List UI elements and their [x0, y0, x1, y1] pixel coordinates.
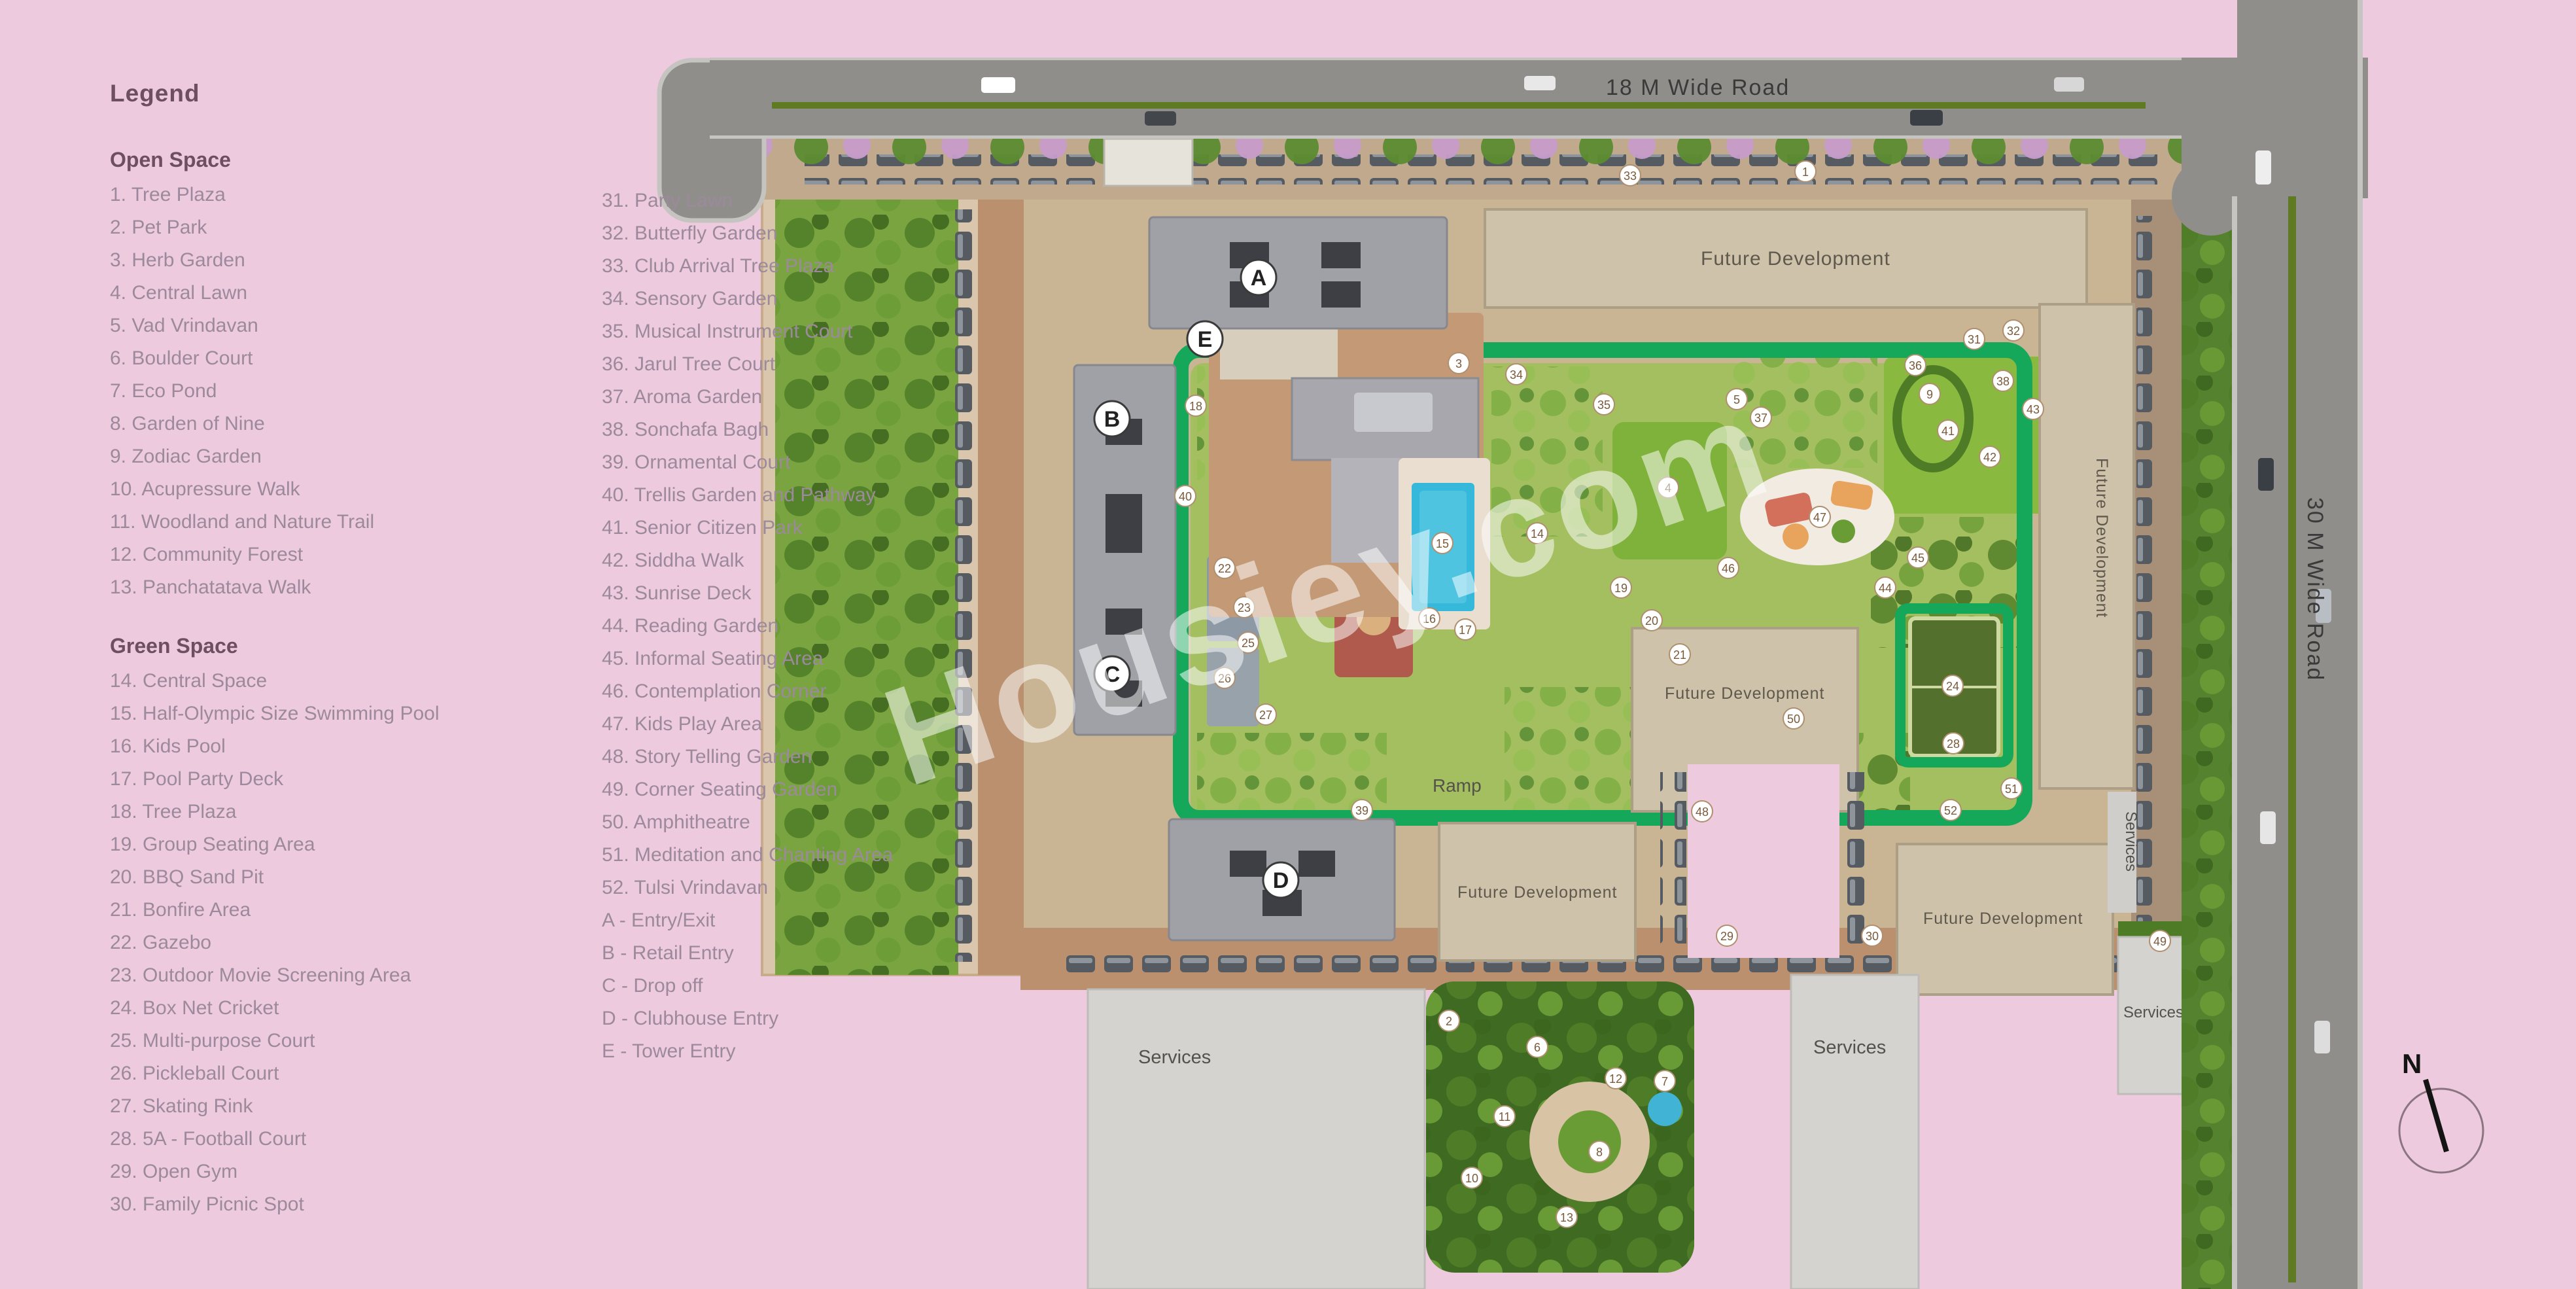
svg-text:41: 41 — [1941, 425, 1955, 438]
svg-text:27: 27 — [1259, 709, 1272, 722]
services-left-label: Services — [1138, 1047, 1211, 1068]
legend-item: 12. Community Forest — [110, 539, 1091, 571]
svg-text:34: 34 — [1510, 368, 1523, 381]
legend-item: 40. Trellis Garden and Pathway — [602, 479, 893, 512]
legend-item: 46. Contemplation Corner — [602, 675, 893, 708]
legend-item: 51. Meditation and Chanting Area — [602, 839, 893, 872]
future-dev-bottom-left-label: Future Development — [1457, 883, 1618, 902]
svg-text:31: 31 — [1968, 333, 1981, 346]
legend-item: 36. Jarul Tree Court — [602, 348, 893, 381]
legend-item: 43. Sunrise Deck — [602, 577, 893, 610]
median-right — [2288, 196, 2296, 1282]
entry-key-item: A - Entry/Exit — [602, 904, 893, 937]
svg-text:22: 22 — [1218, 562, 1231, 575]
legend-item: 45. Informal Seating Area — [602, 643, 893, 675]
svg-text:8: 8 — [1596, 1146, 1603, 1159]
svg-text:45: 45 — [1911, 552, 1924, 565]
legend-item: 10. Acupressure Walk — [110, 473, 1091, 506]
future-dev-mid-label: Future Development — [1665, 684, 1825, 703]
legend-item: 26. Pickleball Court — [110, 1057, 1091, 1090]
future-dev-top-label: Future Development — [1701, 248, 1890, 270]
legend-item: 13. Panchatatava Walk — [110, 571, 1091, 604]
entry-key-item: C - Drop off — [602, 970, 893, 1002]
future-dev-right — [2040, 304, 2134, 788]
svg-text:3: 3 — [1455, 357, 1462, 370]
svg-text:52: 52 — [1944, 804, 1957, 817]
compass: N — [2399, 1048, 2483, 1173]
svg-text:25: 25 — [1242, 637, 1255, 650]
svg-text:7: 7 — [1662, 1075, 1668, 1088]
legend-item: 52. Tulsi Vrindavan — [602, 872, 893, 904]
svg-text:16: 16 — [1423, 612, 1436, 626]
svg-text:9: 9 — [1926, 388, 1933, 401]
svg-text:33: 33 — [1624, 169, 1637, 183]
legend-item: 47. Kids Play Area — [602, 708, 893, 741]
svg-text:26: 26 — [1218, 672, 1231, 685]
legend-item: 18. Tree Plaza — [110, 796, 1091, 828]
svg-text:42: 42 — [1983, 451, 1996, 464]
svg-text:18: 18 — [1189, 400, 1202, 413]
legend-item: 16. Kids Pool — [110, 730, 1091, 763]
green-space-header: Green Space — [110, 634, 1091, 658]
kids-pond — [1648, 1092, 1682, 1126]
svg-text:36: 36 — [1909, 359, 1922, 372]
svg-text:6: 6 — [1534, 1041, 1540, 1054]
legend-item: 48. Story Telling Garden — [602, 741, 893, 773]
future-dev-right-label: Future Development — [2093, 458, 2111, 618]
compass-n-label: N — [2402, 1048, 2422, 1079]
tower-a — [1149, 217, 1447, 328]
legend-list-31-52: 31. Party Lawn 32. Butterfly Garden 33. … — [602, 185, 893, 904]
services-apron-mid — [1791, 975, 1919, 1289]
legend-item: 39. Ornamental Court — [602, 446, 893, 479]
entry-key-item: D - Clubhouse Entry — [602, 1002, 893, 1035]
gatehouse — [1104, 139, 1192, 186]
svg-text:A: A — [1251, 266, 1267, 291]
svg-text:12: 12 — [1609, 1072, 1622, 1086]
legend-item: 32. Butterfly Garden — [602, 217, 893, 250]
legend-item: 17. Pool Party Deck — [110, 763, 1091, 796]
svg-text:48: 48 — [1696, 805, 1709, 819]
legend-item: 37. Aroma Garden — [602, 381, 893, 414]
legend-item: 6. Boulder Court — [110, 342, 1091, 375]
svg-text:44: 44 — [1879, 582, 1892, 595]
svg-text:23: 23 — [1238, 601, 1251, 614]
svg-text:38: 38 — [1996, 375, 2010, 388]
green-space-list: 14. Central Space 15. Half-Olympic Size … — [110, 665, 1091, 1221]
legend-item: 41. Senior Citizen Park — [602, 512, 893, 544]
legend-item: 14. Central Space — [110, 665, 1091, 697]
svg-text:20: 20 — [1645, 614, 1658, 627]
legend-item: 50. Amphitheatre — [602, 806, 893, 839]
legend-item: 9. Zodiac Garden — [110, 440, 1091, 473]
legend-item: 2. Pet Park — [110, 211, 1091, 244]
svg-text:51: 51 — [2005, 783, 2018, 796]
svg-text:21: 21 — [1673, 648, 1686, 662]
svg-text:24: 24 — [1946, 680, 1959, 693]
entry-key-item: B - Retail Entry — [602, 937, 893, 970]
road-right-label: 30 M Wide Road — [2303, 497, 2327, 681]
svg-text:14: 14 — [1531, 527, 1544, 540]
svg-text:29: 29 — [1720, 930, 1733, 943]
svg-text:B: B — [1104, 407, 1121, 432]
svg-text:10: 10 — [1465, 1172, 1478, 1185]
svg-text:49: 49 — [2153, 935, 2167, 948]
legend-item: 11. Woodland and Nature Trail — [110, 506, 1091, 539]
east-green-strip — [2182, 196, 2239, 1289]
legend-column-1: Open Space 1. Tree Plaza 2. Pet Park 3. … — [110, 148, 1091, 1221]
svg-text:43: 43 — [2027, 403, 2040, 416]
legend-item: 49. Corner Seating Garden — [602, 773, 893, 806]
legend-item: 34. Sensory Garden — [602, 283, 893, 315]
svg-text:E: E — [1198, 327, 1213, 352]
legend-item: 4. Central Lawn — [110, 277, 1091, 309]
services-apron-left — [1088, 989, 1425, 1289]
svg-text:5: 5 — [1733, 393, 1740, 406]
entry-key-list: A - Entry/Exit B - Retail Entry C - Drop… — [602, 904, 893, 1068]
ramp-label: Ramp — [1433, 775, 1482, 796]
svg-text:30: 30 — [1866, 930, 1879, 943]
svg-text:40: 40 — [1179, 490, 1192, 503]
legend-item: 1. Tree Plaza — [110, 179, 1091, 211]
legend-item: 25. Multi-purpose Court — [110, 1025, 1091, 1057]
legend-title: Legend — [110, 80, 1091, 107]
legend-item: 8. Garden of Nine — [110, 408, 1091, 440]
legend-item: 20. BBQ Sand Pit — [110, 861, 1091, 894]
svg-text:37: 37 — [1754, 412, 1767, 425]
legend-item: 33. Club Arrival Tree Plaza — [602, 250, 893, 283]
legend-item: 24. Box Net Cricket — [110, 992, 1091, 1025]
svg-text:15: 15 — [1436, 537, 1449, 550]
svg-text:35: 35 — [1597, 398, 1610, 412]
legend-panel: Legend Open Space 1. Tree Plaza 2. Pet P… — [110, 80, 1091, 1221]
svg-text:19: 19 — [1614, 582, 1627, 595]
entry-key-item: E - Tower Entry — [602, 1035, 893, 1068]
legend-item: 7. Eco Pond — [110, 375, 1091, 408]
svg-text:32: 32 — [2007, 325, 2020, 338]
svg-text:46: 46 — [1722, 562, 1735, 575]
svg-text:47: 47 — [1813, 511, 1826, 524]
open-space-header: Open Space — [110, 148, 1091, 172]
legend-item: 22. Gazebo — [110, 927, 1091, 959]
legend-item: 30. Family Picnic Spot — [110, 1188, 1091, 1221]
pickleball-court — [1207, 648, 1259, 726]
services-vertical-label: Services — [2122, 811, 2140, 872]
future-dev-bottom-right-label: Future Development — [1923, 909, 2083, 928]
legend-item: 35. Musical Instrument Court — [602, 315, 893, 348]
legend-item: 15. Half-Olympic Size Swimming Pool — [110, 697, 1091, 730]
legend-item: 31. Party Lawn — [602, 185, 893, 217]
svg-text:C: C — [1104, 662, 1121, 687]
legend-item: 28. 5A - Football Court — [110, 1123, 1091, 1156]
legend-item: 42. Siddha Walk — [602, 544, 893, 577]
svg-text:13: 13 — [1560, 1211, 1573, 1224]
clubhouse-and-pool — [1209, 313, 1490, 629]
open-space-list: 1. Tree Plaza 2. Pet Park 3. Herb Garden… — [110, 179, 1091, 604]
legend-item: 27. Skating Rink — [110, 1090, 1091, 1123]
legend-item: 23. Outdoor Movie Screening Area — [110, 959, 1091, 992]
road-top-label: 18 M Wide Road — [1606, 75, 1790, 100]
svg-text:D: D — [1273, 868, 1289, 893]
masked-parcel — [1660, 764, 1867, 958]
svg-text:39: 39 — [1355, 804, 1368, 817]
services-mid-label: Services — [1813, 1037, 1886, 1058]
legend-item: 3. Herb Garden — [110, 244, 1091, 277]
svg-text:2: 2 — [1446, 1015, 1452, 1028]
svg-text:17: 17 — [1459, 624, 1472, 637]
svg-text:50: 50 — [1787, 713, 1800, 726]
svg-text:1: 1 — [1802, 166, 1809, 179]
legend-column-2: 31. Party Lawn 32. Butterfly Garden 33. … — [602, 185, 893, 1068]
svg-text:11: 11 — [1499, 1110, 1511, 1123]
legend-item: 44. Reading Garden — [602, 610, 893, 643]
legend-item: 38. Sonchafa Bagh — [602, 414, 893, 446]
legend-item: 5. Vad Vrindavan — [110, 309, 1091, 342]
legend-item: 21. Bonfire Area — [110, 894, 1091, 927]
services-right-label: Services — [2123, 1004, 2184, 1021]
legend-item: 29. Open Gym — [110, 1156, 1091, 1188]
svg-text:4: 4 — [1665, 482, 1671, 495]
legend-item: 19. Group Seating Area — [110, 828, 1091, 861]
svg-text:28: 28 — [1947, 737, 1960, 750]
